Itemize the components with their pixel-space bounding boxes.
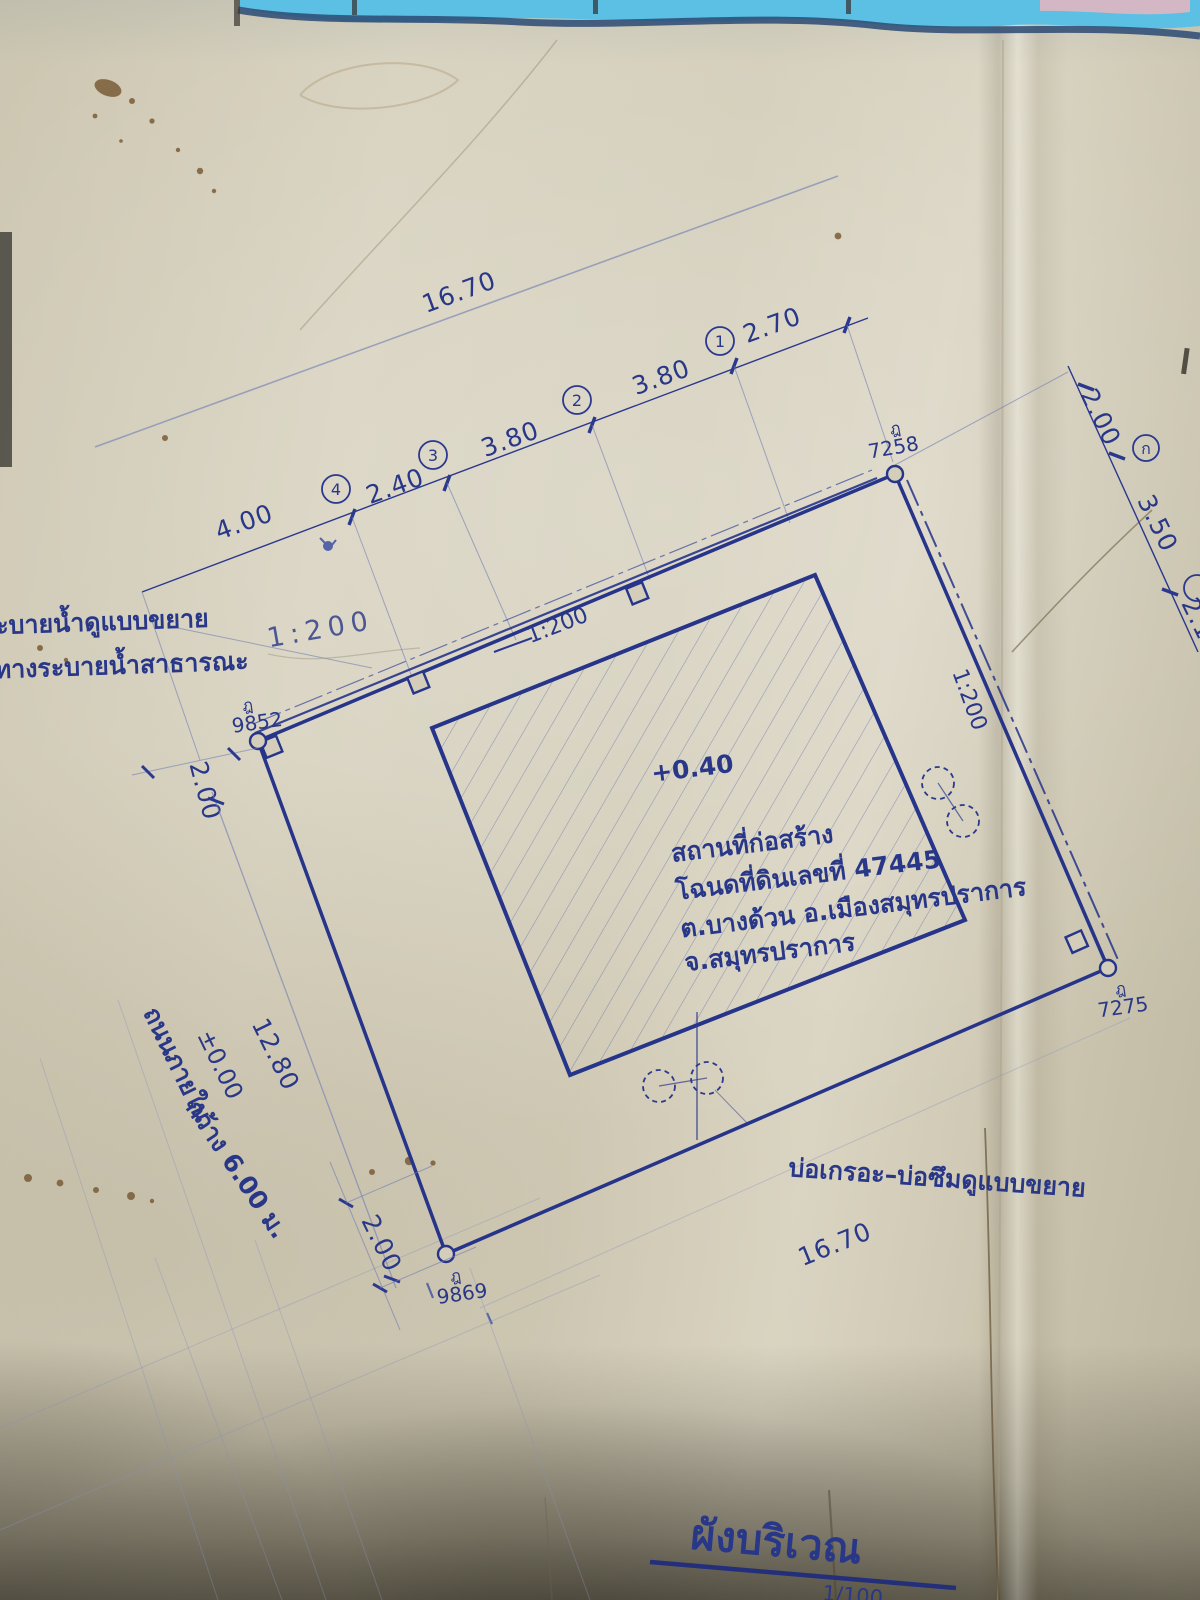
west-dimension: 2.00 [132, 748, 258, 823]
marker-number: 9869 [435, 1278, 489, 1309]
marker-number: 7258 [866, 431, 920, 463]
station-number: 2 [572, 391, 582, 410]
edge-mark [1181, 348, 1190, 374]
edge-tear [352, 0, 357, 15]
marker-number: 7275 [1096, 992, 1150, 1023]
dim-segment: 4.00 [211, 498, 277, 546]
edge-tear [846, 0, 851, 14]
station-number: 3 [428, 446, 438, 465]
road-width: กว้าง 6.00 ม. [180, 1095, 294, 1244]
title-scale: 1/100 [822, 1581, 884, 1600]
pencil-note: 1:200 [265, 605, 377, 654]
left-edge-object [0, 232, 12, 467]
dim-segment: 2.40 [362, 462, 428, 510]
dim-segment: 2.70 [739, 301, 805, 349]
blueprint-photo: 16.70 4.00 2.40 3.80 3.80 2.70 [0, 0, 1200, 1600]
dim-southwest: 12.80 [246, 1014, 306, 1096]
ink-splat [320, 538, 336, 550]
drain-detail-note: ะบายน้ำดูแบบขยาย [0, 599, 209, 642]
edge-tear [234, 0, 240, 26]
southwest-dimension: 12.80 ±0.00 ถนนภายใน กว้าง 6.00 ม. [137, 792, 400, 1288]
photo-background-edge [0, 0, 1200, 467]
dim-segment: 3.80 [477, 415, 543, 463]
dimension-ticks [349, 317, 850, 525]
station-number: 4 [331, 480, 341, 499]
dim-top-total: 16.70 [418, 265, 500, 318]
septic-label: บ่อเกรอะ–บ่อซึมดูแบบขยาย [787, 1153, 1086, 1205]
station-letter: ก [1141, 439, 1151, 458]
station-number: 1 [715, 332, 725, 351]
dim-southeast: 16.70 [794, 1216, 876, 1272]
dim-segment: 2.00 [1075, 384, 1127, 450]
edge-tear [593, 0, 598, 14]
drain-scale-ne: 1:200 [947, 666, 992, 734]
left-margin-labels: ะบายน้ำดูแบบขยาย ทางระบายน้ำสาธารณะ [0, 597, 249, 684]
title-block: ผังบริเวณ 1/100 [650, 1510, 956, 1600]
right-dimension-system: 2.00 3.50 2.10 ก [895, 366, 1200, 659]
building-footprint [432, 575, 965, 1075]
site-plan-drawing: 16.70 4.00 2.40 3.80 3.80 2.70 [0, 0, 1200, 1600]
dim-segment: 3.80 [628, 353, 694, 401]
drawing-title: ผังบริเวณ [689, 1510, 864, 1574]
